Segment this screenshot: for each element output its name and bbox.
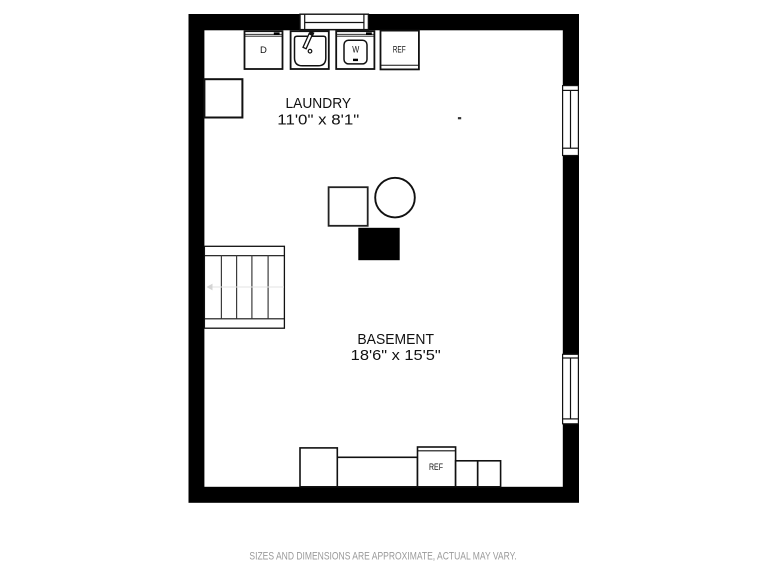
svg-text:SIZES AND DIMENSIONS ARE APPRO: SIZES AND DIMENSIONS ARE APPROXIMATE, AC… <box>249 551 516 563</box>
svg-text:LAUNDRY: LAUNDRY <box>286 95 352 112</box>
svg-text:18'6" x 15'5": 18'6" x 15'5" <box>351 347 441 364</box>
svg-text:REF: REF <box>429 462 443 472</box>
svg-text:W: W <box>352 45 359 55</box>
svg-text:11'0" x 8'1": 11'0" x 8'1" <box>277 111 359 128</box>
svg-text:REF: REF <box>393 44 406 54</box>
svg-text:D: D <box>260 45 267 56</box>
svg-text:BASEMENT: BASEMENT <box>357 331 434 348</box>
